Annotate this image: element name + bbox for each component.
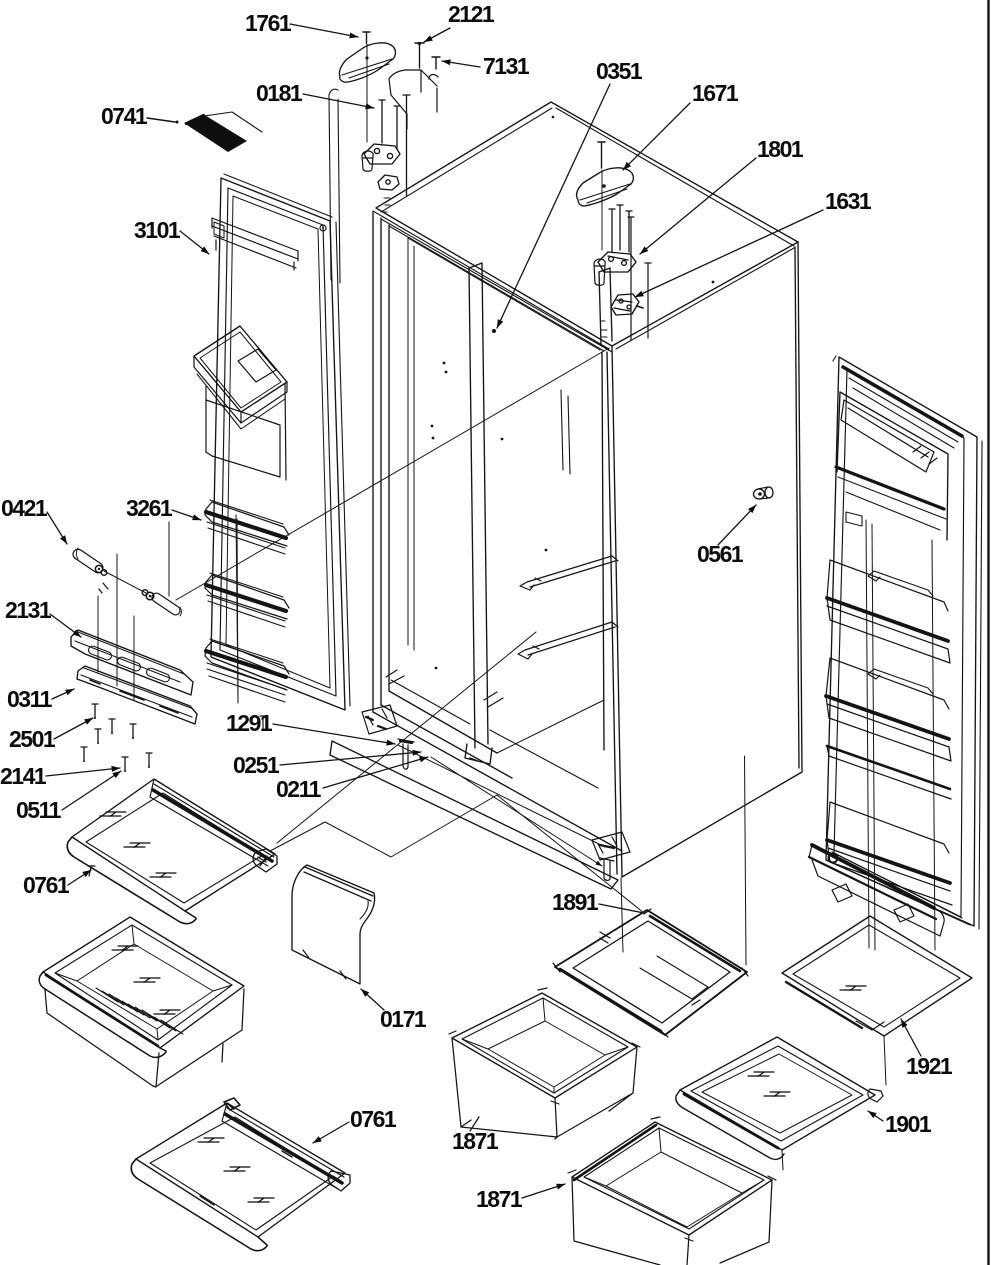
svg-text:0311: 0311 (7, 686, 53, 712)
svg-text:1871: 1871 (452, 1128, 499, 1154)
svg-text:1891: 1891 (552, 889, 599, 915)
svg-text:0351: 0351 (596, 58, 643, 84)
svg-text:0761: 0761 (23, 872, 70, 898)
svg-text:0511: 0511 (16, 797, 62, 823)
svg-text:0211: 0211 (276, 776, 322, 802)
svg-text:1761: 1761 (245, 10, 292, 36)
svg-text:1921: 1921 (906, 1053, 953, 1079)
svg-text:0251: 0251 (233, 752, 280, 778)
svg-text:2141: 2141 (0, 763, 47, 789)
svg-text:0421: 0421 (1, 495, 48, 521)
svg-text:1901: 1901 (885, 1111, 932, 1137)
svg-text:1291: 1291 (226, 710, 273, 736)
svg-text:2501: 2501 (9, 726, 56, 752)
svg-text:1801: 1801 (757, 136, 804, 162)
svg-text:2131: 2131 (5, 597, 52, 623)
svg-text:0181: 0181 (256, 80, 303, 106)
svg-text:7131: 7131 (483, 53, 530, 79)
svg-text:1671: 1671 (692, 80, 739, 106)
svg-text:1631: 1631 (825, 188, 872, 214)
svg-text:1871: 1871 (476, 1186, 523, 1212)
svg-text:2121: 2121 (448, 1, 495, 27)
svg-text:0761: 0761 (350, 1106, 397, 1132)
svg-text:3101: 3101 (134, 217, 181, 243)
svg-text:0561: 0561 (697, 541, 744, 567)
svg-text:3261: 3261 (126, 495, 173, 521)
svg-text:0171: 0171 (380, 1006, 427, 1032)
svg-text:0741: 0741 (101, 103, 148, 129)
